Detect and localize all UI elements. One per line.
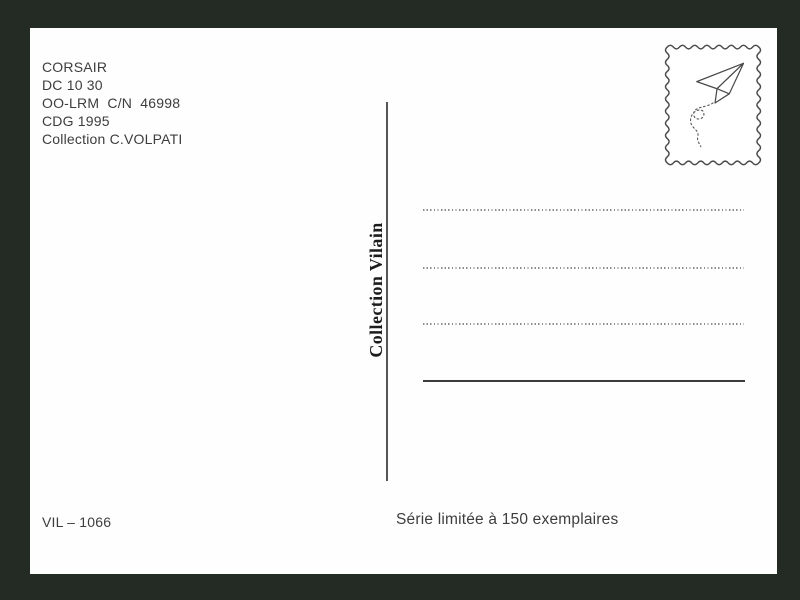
address-solid-line — [423, 380, 745, 382]
reference-number: VIL – 1066 — [42, 514, 111, 530]
photo-info-block: CORSAIR DC 10 30 OO-LRM C/N 46998 CDG 19… — [42, 58, 182, 148]
publisher-label: Collection Vilain — [366, 220, 388, 360]
info-line-aircraft: DC 10 30 — [42, 76, 182, 94]
stamp-wavy-border — [665, 45, 760, 164]
address-dotted-line — [423, 323, 744, 325]
postcard-back: CORSAIR DC 10 30 OO-LRM C/N 46998 CDG 19… — [30, 28, 777, 574]
info-line-photo-credit: Collection C.VOLPATI — [42, 130, 182, 148]
info-line-location-year: CDG 1995 — [42, 112, 182, 130]
address-dotted-line — [423, 267, 744, 269]
stamp-frame — [662, 42, 764, 168]
info-line-registration: OO-LRM C/N 46998 — [42, 94, 182, 112]
limited-edition-note: Série limitée à 150 exemplaires — [396, 511, 618, 529]
address-dotted-line — [423, 209, 744, 211]
info-line-airline: CORSAIR — [42, 58, 182, 76]
